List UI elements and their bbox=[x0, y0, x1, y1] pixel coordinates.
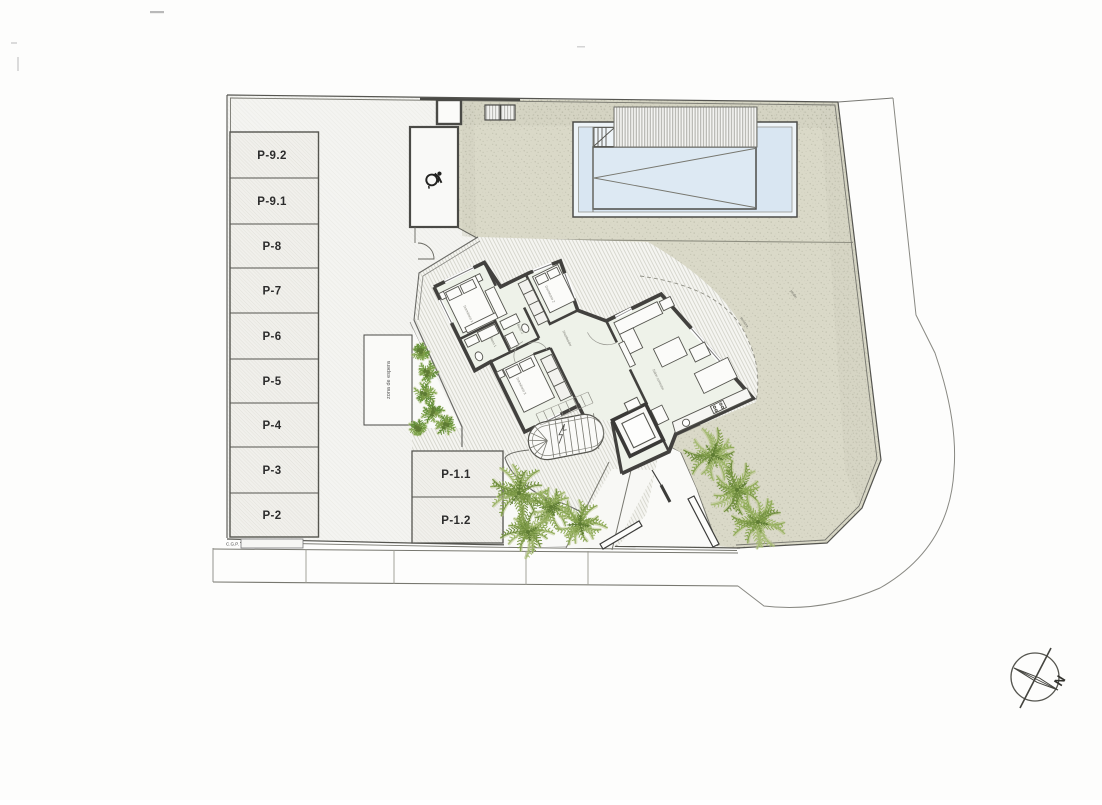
svg-text:P-7: P-7 bbox=[262, 286, 281, 298]
svg-text:P-9.1: P-9.1 bbox=[257, 196, 287, 208]
svg-text:P-2: P-2 bbox=[262, 510, 281, 522]
svg-text:P-9.2: P-9.2 bbox=[257, 150, 287, 162]
svg-text:P-5: P-5 bbox=[262, 376, 281, 388]
svg-text:C.G.P.: C.G.P. bbox=[226, 542, 239, 547]
svg-text:P-1.2: P-1.2 bbox=[441, 515, 471, 527]
svg-text:P-8: P-8 bbox=[262, 241, 281, 253]
svg-text:P-3: P-3 bbox=[262, 465, 281, 477]
svg-text:P-6: P-6 bbox=[262, 331, 281, 343]
svg-text:P-4: P-4 bbox=[262, 420, 281, 432]
svg-text:P-1.1: P-1.1 bbox=[441, 469, 471, 481]
svg-text:zona de espera: zona de espera bbox=[386, 360, 392, 399]
